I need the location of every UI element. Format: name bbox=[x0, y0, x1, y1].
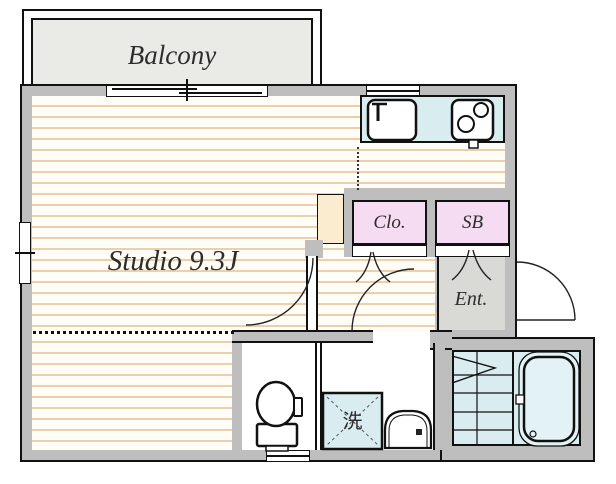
toilet-room-floor bbox=[242, 343, 315, 450]
window-center-tick bbox=[15, 252, 35, 254]
floor-plan: Clo. SB bbox=[0, 0, 616, 484]
window-sash-line bbox=[367, 90, 419, 92]
entrance-door-arc bbox=[517, 262, 575, 320]
hallway-floor bbox=[317, 250, 435, 332]
shoe-box: SB bbox=[435, 200, 510, 245]
closet-label: Clo. bbox=[373, 213, 405, 232]
toilet-top-wall bbox=[232, 330, 373, 343]
shoe-box-label: SB bbox=[462, 213, 483, 232]
kitchen-window bbox=[366, 85, 420, 96]
kitchen-zone-divider bbox=[357, 147, 359, 190]
studio-floor-lower bbox=[32, 332, 232, 450]
balcony-label: Balcony bbox=[22, 42, 322, 69]
sliding-door-center-tick bbox=[186, 79, 188, 101]
washroom-right-wall bbox=[433, 343, 445, 450]
window-sash-line bbox=[267, 455, 309, 457]
toilet-left-wall bbox=[232, 343, 242, 450]
closet-threshold bbox=[352, 245, 427, 257]
washroom-door-opening bbox=[373, 332, 430, 343]
hall-partition-wall bbox=[306, 256, 318, 332]
toilet-window bbox=[266, 450, 310, 462]
sliding-door-panel bbox=[179, 92, 262, 94]
kitchen-counter bbox=[360, 95, 505, 143]
toilet-washroom-partition bbox=[315, 343, 322, 450]
floor-zone-divider bbox=[33, 331, 234, 334]
laundry-pan-label: 洗 bbox=[323, 393, 382, 449]
bathroom-floor bbox=[452, 350, 581, 446]
studio-floor bbox=[32, 96, 352, 332]
sliding-door-panel bbox=[112, 88, 197, 90]
shoe-box-threshold bbox=[435, 245, 510, 257]
entrance-label: Ent. bbox=[437, 289, 505, 309]
closet-box: Clo. bbox=[352, 200, 427, 245]
studio-label: Studio 9.3J bbox=[58, 247, 288, 276]
refrigerator-space bbox=[317, 194, 344, 244]
